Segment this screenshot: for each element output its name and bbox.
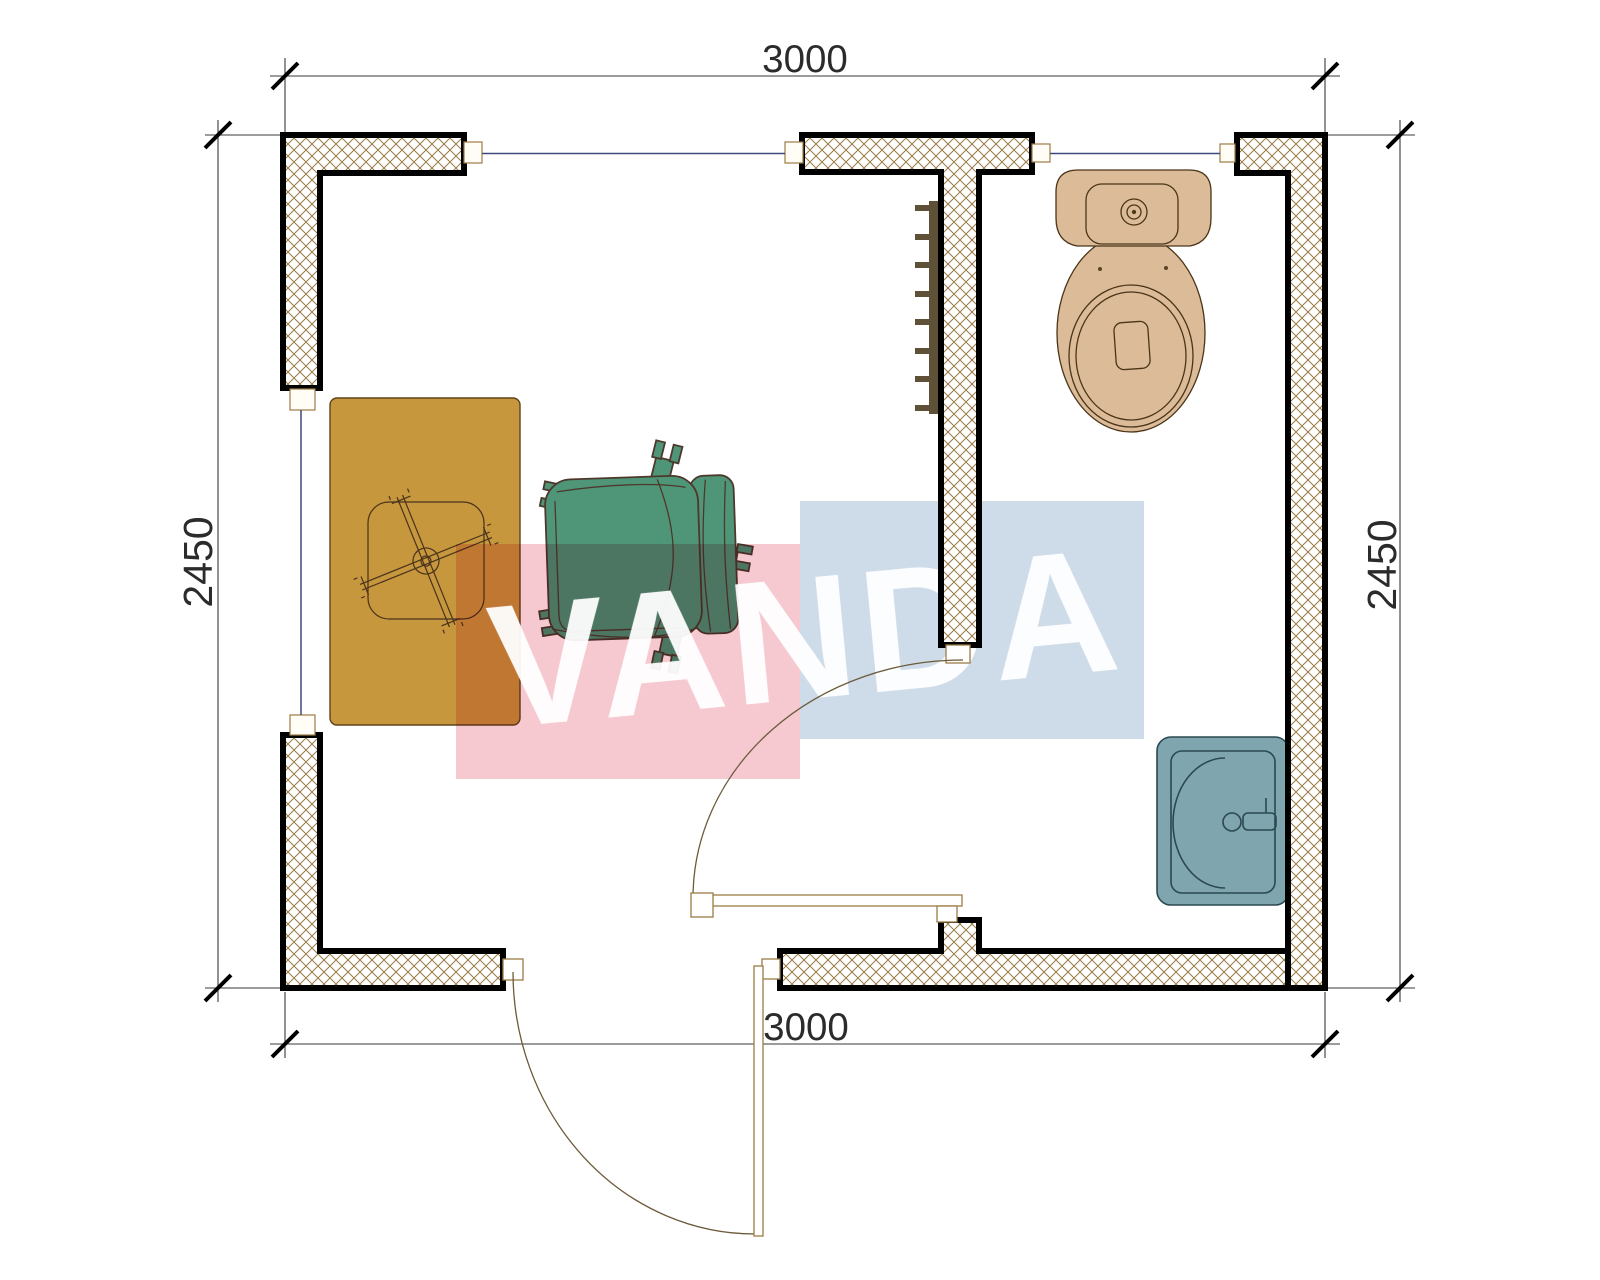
svg-text:2450: 2450 — [1359, 519, 1405, 610]
svg-text:3000: 3000 — [762, 38, 848, 81]
svg-text:3000: 3000 — [763, 1006, 849, 1049]
svg-text:2450: 2450 — [175, 516, 221, 607]
